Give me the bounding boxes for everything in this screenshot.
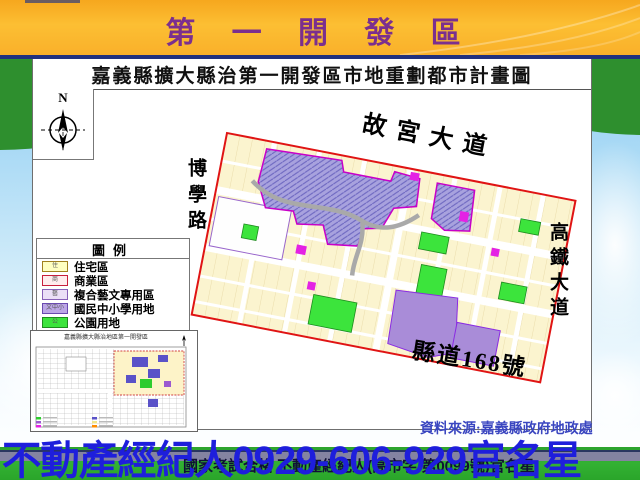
slide: 第 一 開 發 區 嘉義縣擴大縣治第一開發區市地重劃都市計畫圖 N xyxy=(0,0,640,480)
title-bar: 第 一 開 發 區 xyxy=(0,0,640,55)
agent-contact-line: 不動產經紀人0929-606-929官名星 xyxy=(2,428,632,480)
legend-swatch: 公 xyxy=(42,317,68,328)
divider-line xyxy=(0,55,640,59)
legend-swatch: 文中小 xyxy=(42,303,68,314)
inset-map: 嘉義縣擴大縣治地區第一開發區 xyxy=(30,330,198,432)
legend-label: 公園用地 xyxy=(74,315,120,331)
slide-title: 第 一 開 發 區 xyxy=(0,8,640,52)
inset-map-drawing xyxy=(32,331,196,429)
legend-row-commercial: 商 商業區 xyxy=(37,274,189,287)
street-label-gaotie: 高鐵大道 xyxy=(544,222,571,322)
legend-row-park: 公 公園用地 xyxy=(37,316,189,329)
legend-title: 圖例 xyxy=(37,239,189,259)
street-label-boxue: 博學路 xyxy=(182,158,209,236)
legend-row-arts: 藝 複合藝文專用區 xyxy=(37,288,189,301)
legend-swatch: 藝 xyxy=(42,289,68,300)
legend-swatch: 商 xyxy=(42,275,68,286)
legend-swatch: 住 xyxy=(42,261,68,272)
legend-row-school: 文中小 國民中小學用地 xyxy=(37,302,189,315)
screen-artifact xyxy=(25,0,80,3)
legend-row-residential: 住 住宅區 xyxy=(37,260,189,273)
